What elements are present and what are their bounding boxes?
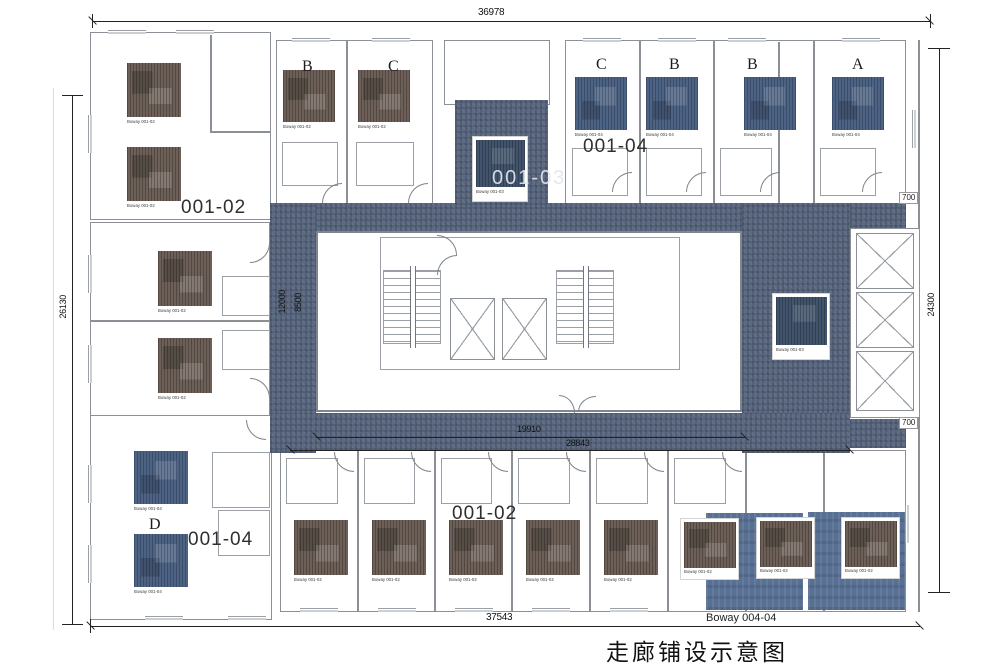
dimension-endbar bbox=[928, 592, 950, 593]
closet bbox=[286, 458, 338, 504]
drawing-guide-line bbox=[53, 88, 54, 630]
dimension-line-left bbox=[72, 95, 73, 625]
swatch-caption: Boway 001-04 bbox=[832, 133, 860, 137]
swatch-caption: Boway 001-02 bbox=[845, 569, 873, 573]
room-letter: D bbox=[149, 516, 161, 534]
swatch-caption: Boway 001-02 bbox=[294, 578, 322, 582]
swatch-brown bbox=[526, 520, 580, 575]
window-symbol bbox=[905, 505, 910, 543]
dimension-bottom: 37543 bbox=[486, 612, 512, 623]
swatch-brown bbox=[358, 70, 410, 122]
swatch-blue bbox=[575, 77, 627, 130]
corridor-bottom-strip bbox=[850, 419, 906, 448]
swatch-caption: Boway 001-04 bbox=[646, 133, 674, 137]
closet bbox=[212, 452, 270, 508]
window-symbol bbox=[610, 608, 648, 613]
dimension-endbar bbox=[930, 14, 931, 28]
room-letter: C bbox=[388, 58, 399, 76]
window-symbol bbox=[108, 30, 146, 35]
room-letter: C bbox=[596, 56, 607, 74]
closet bbox=[674, 458, 726, 504]
elevator-symbol bbox=[856, 351, 914, 411]
swatch-caption: Boway 001-02 bbox=[283, 125, 311, 129]
window-symbol bbox=[300, 608, 338, 613]
dimension-top: 36978 bbox=[478, 7, 504, 18]
floor-plan: Boway 004-04 Boway 001-02 Boway 001-02 B… bbox=[0, 0, 1000, 667]
swatch-caption: Boway 001-02 bbox=[127, 204, 155, 208]
dimension-line-bottom bbox=[90, 626, 920, 627]
swatch-brown bbox=[127, 147, 181, 201]
swatch-brown bbox=[127, 63, 181, 117]
swatch-caption: Boway 001-02 bbox=[372, 578, 400, 582]
elevator-shaft-top bbox=[444, 40, 550, 105]
swatch-blue bbox=[646, 77, 698, 130]
swatch-brown bbox=[604, 520, 658, 575]
swatch-brown bbox=[760, 521, 812, 567]
window-symbol bbox=[88, 115, 93, 153]
stair-rail bbox=[583, 266, 589, 348]
stair-left bbox=[383, 270, 441, 344]
swatch-caption: Boway 001-02 bbox=[158, 396, 186, 400]
closet bbox=[282, 142, 338, 186]
swatch-card: Boway 001-02 bbox=[756, 517, 815, 579]
dimension-endbar bbox=[90, 619, 91, 633]
window-symbol bbox=[532, 608, 570, 613]
drawing-title: 走廊铺设示意图 bbox=[606, 633, 788, 667]
elevator-symbol bbox=[856, 292, 914, 348]
room-letter: B bbox=[669, 56, 680, 74]
swatch-blue bbox=[134, 534, 188, 587]
elevator-symbol bbox=[856, 233, 914, 289]
closet bbox=[222, 276, 270, 316]
panel-label: Boway 004-04 bbox=[706, 612, 776, 624]
dimension-core-inner: 8500 bbox=[293, 293, 303, 312]
dimension-endbar bbox=[92, 14, 93, 28]
dimension-endbar bbox=[62, 95, 83, 96]
dimension-corridor-width-bottom: 700 bbox=[899, 417, 918, 429]
dimension-line-19910 bbox=[316, 437, 745, 438]
dimension-line-28843 bbox=[290, 450, 850, 451]
room-letter: B bbox=[302, 58, 313, 76]
corridor-bottom-band bbox=[270, 413, 850, 450]
window-symbol bbox=[88, 465, 93, 503]
closet bbox=[596, 458, 648, 504]
dimension-corridor-inner: 19910 bbox=[517, 424, 541, 434]
swatch-caption: Boway 001-02 bbox=[449, 578, 477, 582]
window-symbol bbox=[88, 255, 93, 293]
window-symbol bbox=[228, 616, 266, 621]
stair-rail bbox=[410, 266, 416, 348]
room-letter: A bbox=[852, 56, 864, 74]
swatch-blue bbox=[744, 77, 796, 130]
elevator-symbol bbox=[502, 298, 547, 360]
swatch-brown bbox=[283, 70, 335, 122]
swatch-brown bbox=[158, 251, 212, 306]
window-symbol bbox=[728, 38, 766, 43]
swatch-brown bbox=[684, 522, 736, 568]
swatch-caption: Boway 001-02 bbox=[358, 125, 386, 129]
swatch-brown bbox=[845, 521, 897, 567]
closet bbox=[441, 458, 492, 504]
dimension-endbar bbox=[928, 48, 950, 49]
window-symbol bbox=[88, 545, 93, 583]
stair-right bbox=[556, 270, 614, 344]
area-label-top-right: 001-04 bbox=[583, 136, 648, 158]
swatch-caption: Boway 001-02 bbox=[526, 578, 554, 582]
closet bbox=[222, 330, 270, 370]
closet bbox=[518, 458, 570, 504]
dimension-right: 24300 bbox=[926, 293, 936, 317]
area-label-top-left: 001-02 bbox=[181, 197, 246, 219]
wall-partition bbox=[210, 131, 271, 133]
dimension-corridor-outer: 28843 bbox=[566, 438, 590, 448]
window-symbol bbox=[912, 110, 917, 148]
dimension-line-top bbox=[92, 21, 930, 22]
room-letter: B bbox=[747, 56, 758, 74]
swatch-caption: Boway 001-02 bbox=[158, 309, 186, 313]
elevator-symbol bbox=[450, 298, 495, 360]
swatch-brown bbox=[372, 520, 426, 575]
window-symbol bbox=[378, 608, 416, 613]
swatch-caption: Boway 001-04 bbox=[134, 507, 162, 511]
dimension-corridor-width-top: 700 bbox=[899, 192, 918, 204]
closet bbox=[356, 142, 414, 186]
swatch-brown bbox=[158, 338, 212, 393]
closet bbox=[364, 458, 415, 504]
window-symbol bbox=[176, 30, 214, 35]
swatch-caption: Boway 001-03 bbox=[776, 348, 804, 352]
swatch-blue bbox=[832, 77, 884, 130]
area-label-bottom-left: 001-04 bbox=[188, 529, 253, 551]
swatch-caption: Boway 001-02 bbox=[760, 569, 788, 573]
window-symbol bbox=[583, 38, 621, 43]
dimension-left: 26130 bbox=[58, 295, 68, 319]
window-symbol bbox=[145, 616, 183, 621]
swatch-dark bbox=[776, 297, 827, 345]
swatch-card: Boway 001-02 bbox=[841, 517, 900, 579]
swatch-card: Boway 001-02 bbox=[680, 518, 739, 580]
wall-partition bbox=[210, 33, 212, 132]
dimension-core-outer: 12000 bbox=[277, 290, 287, 314]
swatch-caption: Boway 001-02 bbox=[604, 578, 632, 582]
swatch-caption: Boway 001-04 bbox=[744, 133, 772, 137]
dimension-line-right bbox=[939, 48, 940, 593]
window-symbol bbox=[372, 38, 410, 43]
swatch-caption: Boway 001-02 bbox=[684, 570, 712, 574]
swatch-brown bbox=[449, 520, 503, 575]
window-symbol bbox=[88, 345, 93, 383]
area-label-bottom: 001-02 bbox=[452, 503, 517, 525]
window-symbol bbox=[292, 38, 330, 43]
swatch-caption: Boway 001-04 bbox=[134, 590, 162, 594]
area-label-center: 001-03 bbox=[492, 167, 566, 190]
window-symbol bbox=[658, 38, 696, 43]
swatch-card: Boway 001-03 bbox=[772, 293, 830, 360]
swatch-caption: Boway 001-03 bbox=[476, 190, 504, 194]
dimension-endbar bbox=[62, 624, 83, 625]
swatch-caption: Boway 001-02 bbox=[127, 120, 155, 124]
swatch-blue bbox=[134, 451, 188, 504]
window-symbol bbox=[842, 38, 880, 43]
swatch-brown bbox=[294, 520, 348, 575]
